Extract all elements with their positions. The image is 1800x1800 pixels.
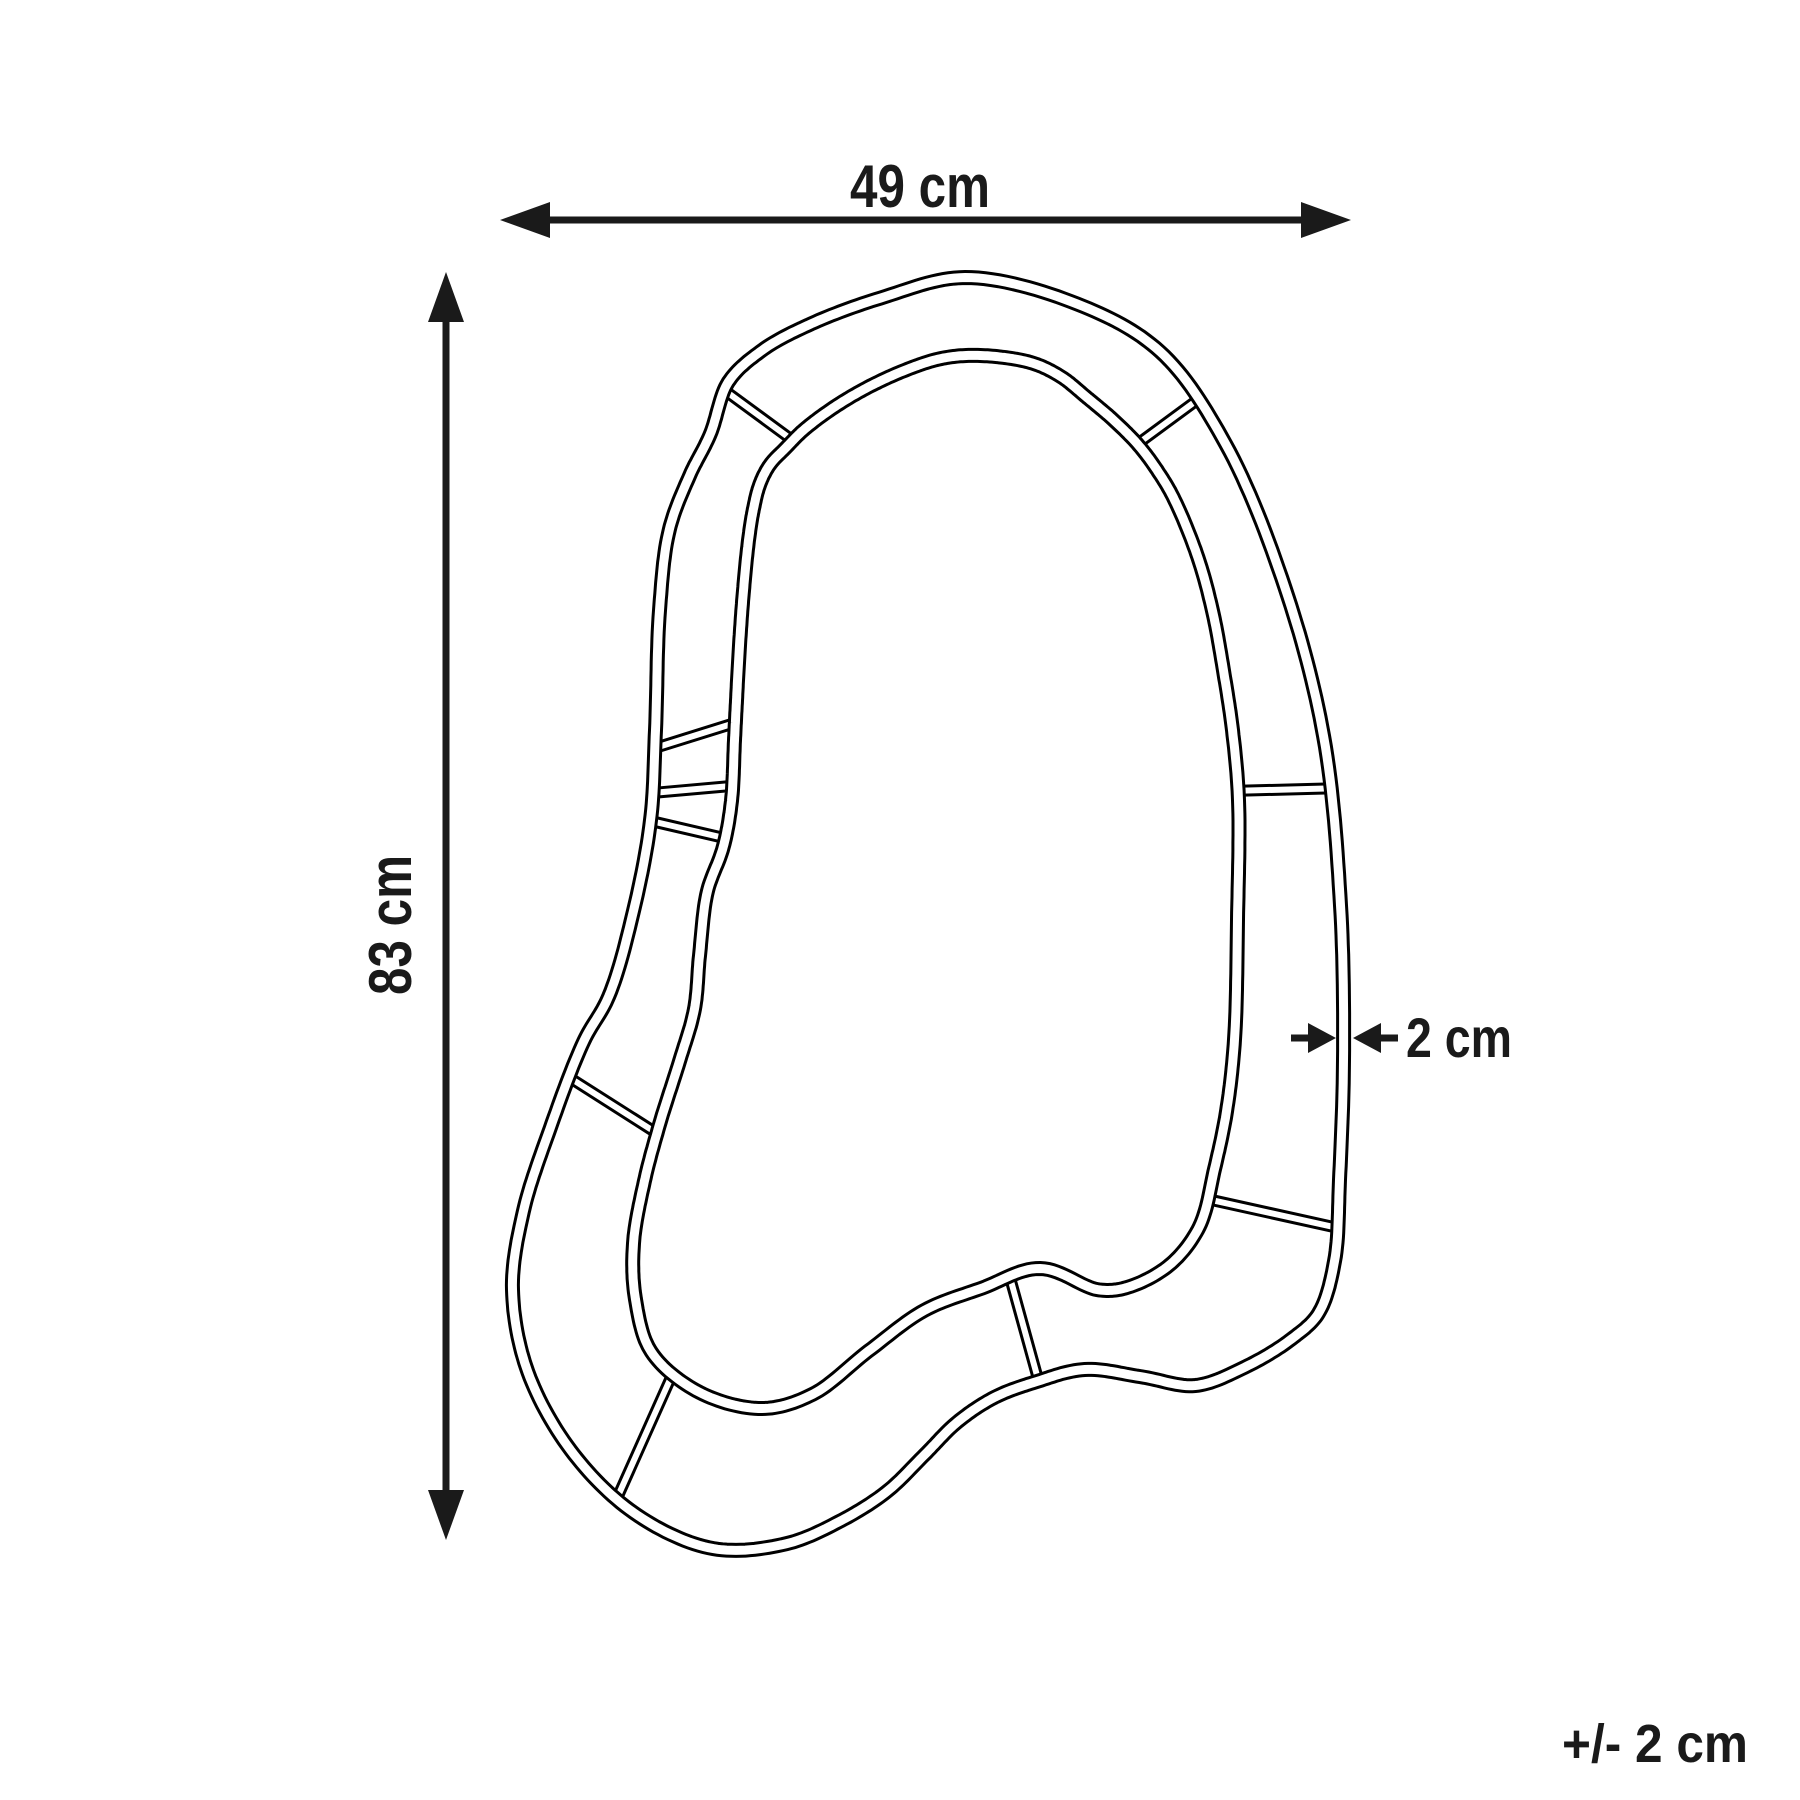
svg-text:83 cm: 83 cm [357,855,424,995]
svg-text:2 cm: 2 cm [1406,1006,1512,1069]
svg-text:49 cm: 49 cm [850,153,990,220]
svg-text:+/- 2 cm: +/- 2 cm [1562,1714,1748,1774]
